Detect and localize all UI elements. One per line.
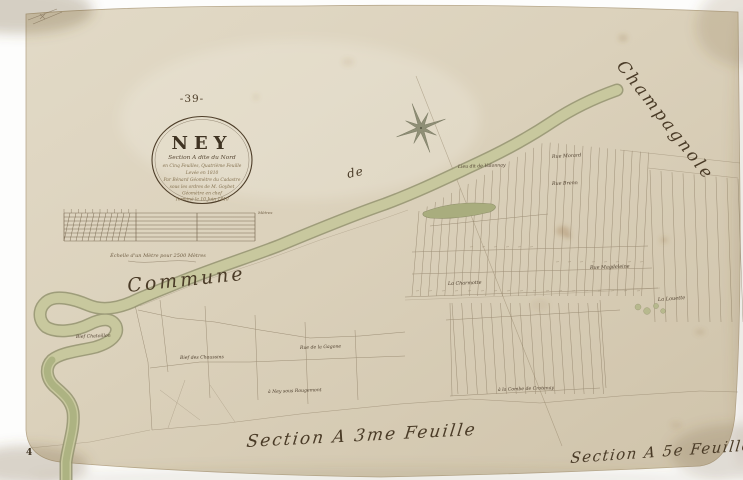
corner-page-number: 4 (26, 448, 32, 458)
scale-unit-label: Mètres (257, 210, 272, 215)
cartouche-subtitle: Section A dite du Nord (168, 155, 236, 161)
map-line (580, 262, 583, 263)
map-line (507, 291, 510, 292)
map-line (481, 291, 484, 292)
map-line (455, 291, 458, 292)
map-line (506, 247, 509, 248)
map-line (604, 262, 607, 263)
map-line (533, 291, 536, 292)
map-line (628, 262, 631, 263)
cartouche-line: Par Bénard Géomètre du Cadastre (163, 178, 241, 183)
map-line (442, 291, 445, 292)
cartouche-title: NEY (171, 133, 232, 154)
place-label: Bief des Chaussins (179, 354, 225, 361)
map-line (611, 291, 614, 292)
map-line (546, 291, 549, 292)
map-line (416, 291, 419, 292)
map-line (429, 291, 432, 292)
map-line (637, 291, 640, 292)
map-line (616, 262, 619, 263)
map-line (518, 247, 521, 248)
map-line (468, 291, 471, 292)
place-label: Bief Chatoillon (75, 333, 111, 340)
map-line (530, 247, 533, 248)
map-line (556, 262, 559, 263)
cartouche-line: Géomètre en chef (182, 192, 223, 197)
sheet-number: -39- (180, 93, 204, 105)
cartouche-line: sous les ordres de M. Goybet (170, 185, 235, 190)
place-label: La Charmotte (447, 280, 482, 287)
map-line (559, 291, 562, 292)
map-line (494, 291, 497, 292)
map-line (494, 247, 497, 248)
map-line (568, 262, 571, 263)
cadastral-map-canvas: Mètres Échelle d'un Mètre pour 2500 Mètr… (0, 0, 743, 480)
map-line (640, 262, 643, 263)
map-line (470, 247, 473, 248)
cartouche-line: Terminé le 10 Juin 1810 (175, 198, 229, 203)
map-line (592, 262, 595, 263)
cartouche-line: en Cinq Feuilles, Quatrième Feuille (163, 164, 242, 169)
scale-caption: Échelle d'un Mètre pour 2500 Mètres (109, 251, 206, 259)
map-line (585, 291, 588, 292)
cartouche-line: Levée en 1810 (185, 171, 219, 176)
place-label: Rue Brenn (551, 180, 578, 187)
scanned-map-page: Mètres Échelle d'un Mètre pour 2500 Mètr… (0, 0, 743, 480)
map-line (624, 291, 627, 292)
map-line (572, 291, 575, 292)
map-line (520, 291, 523, 292)
map-line (598, 291, 601, 292)
